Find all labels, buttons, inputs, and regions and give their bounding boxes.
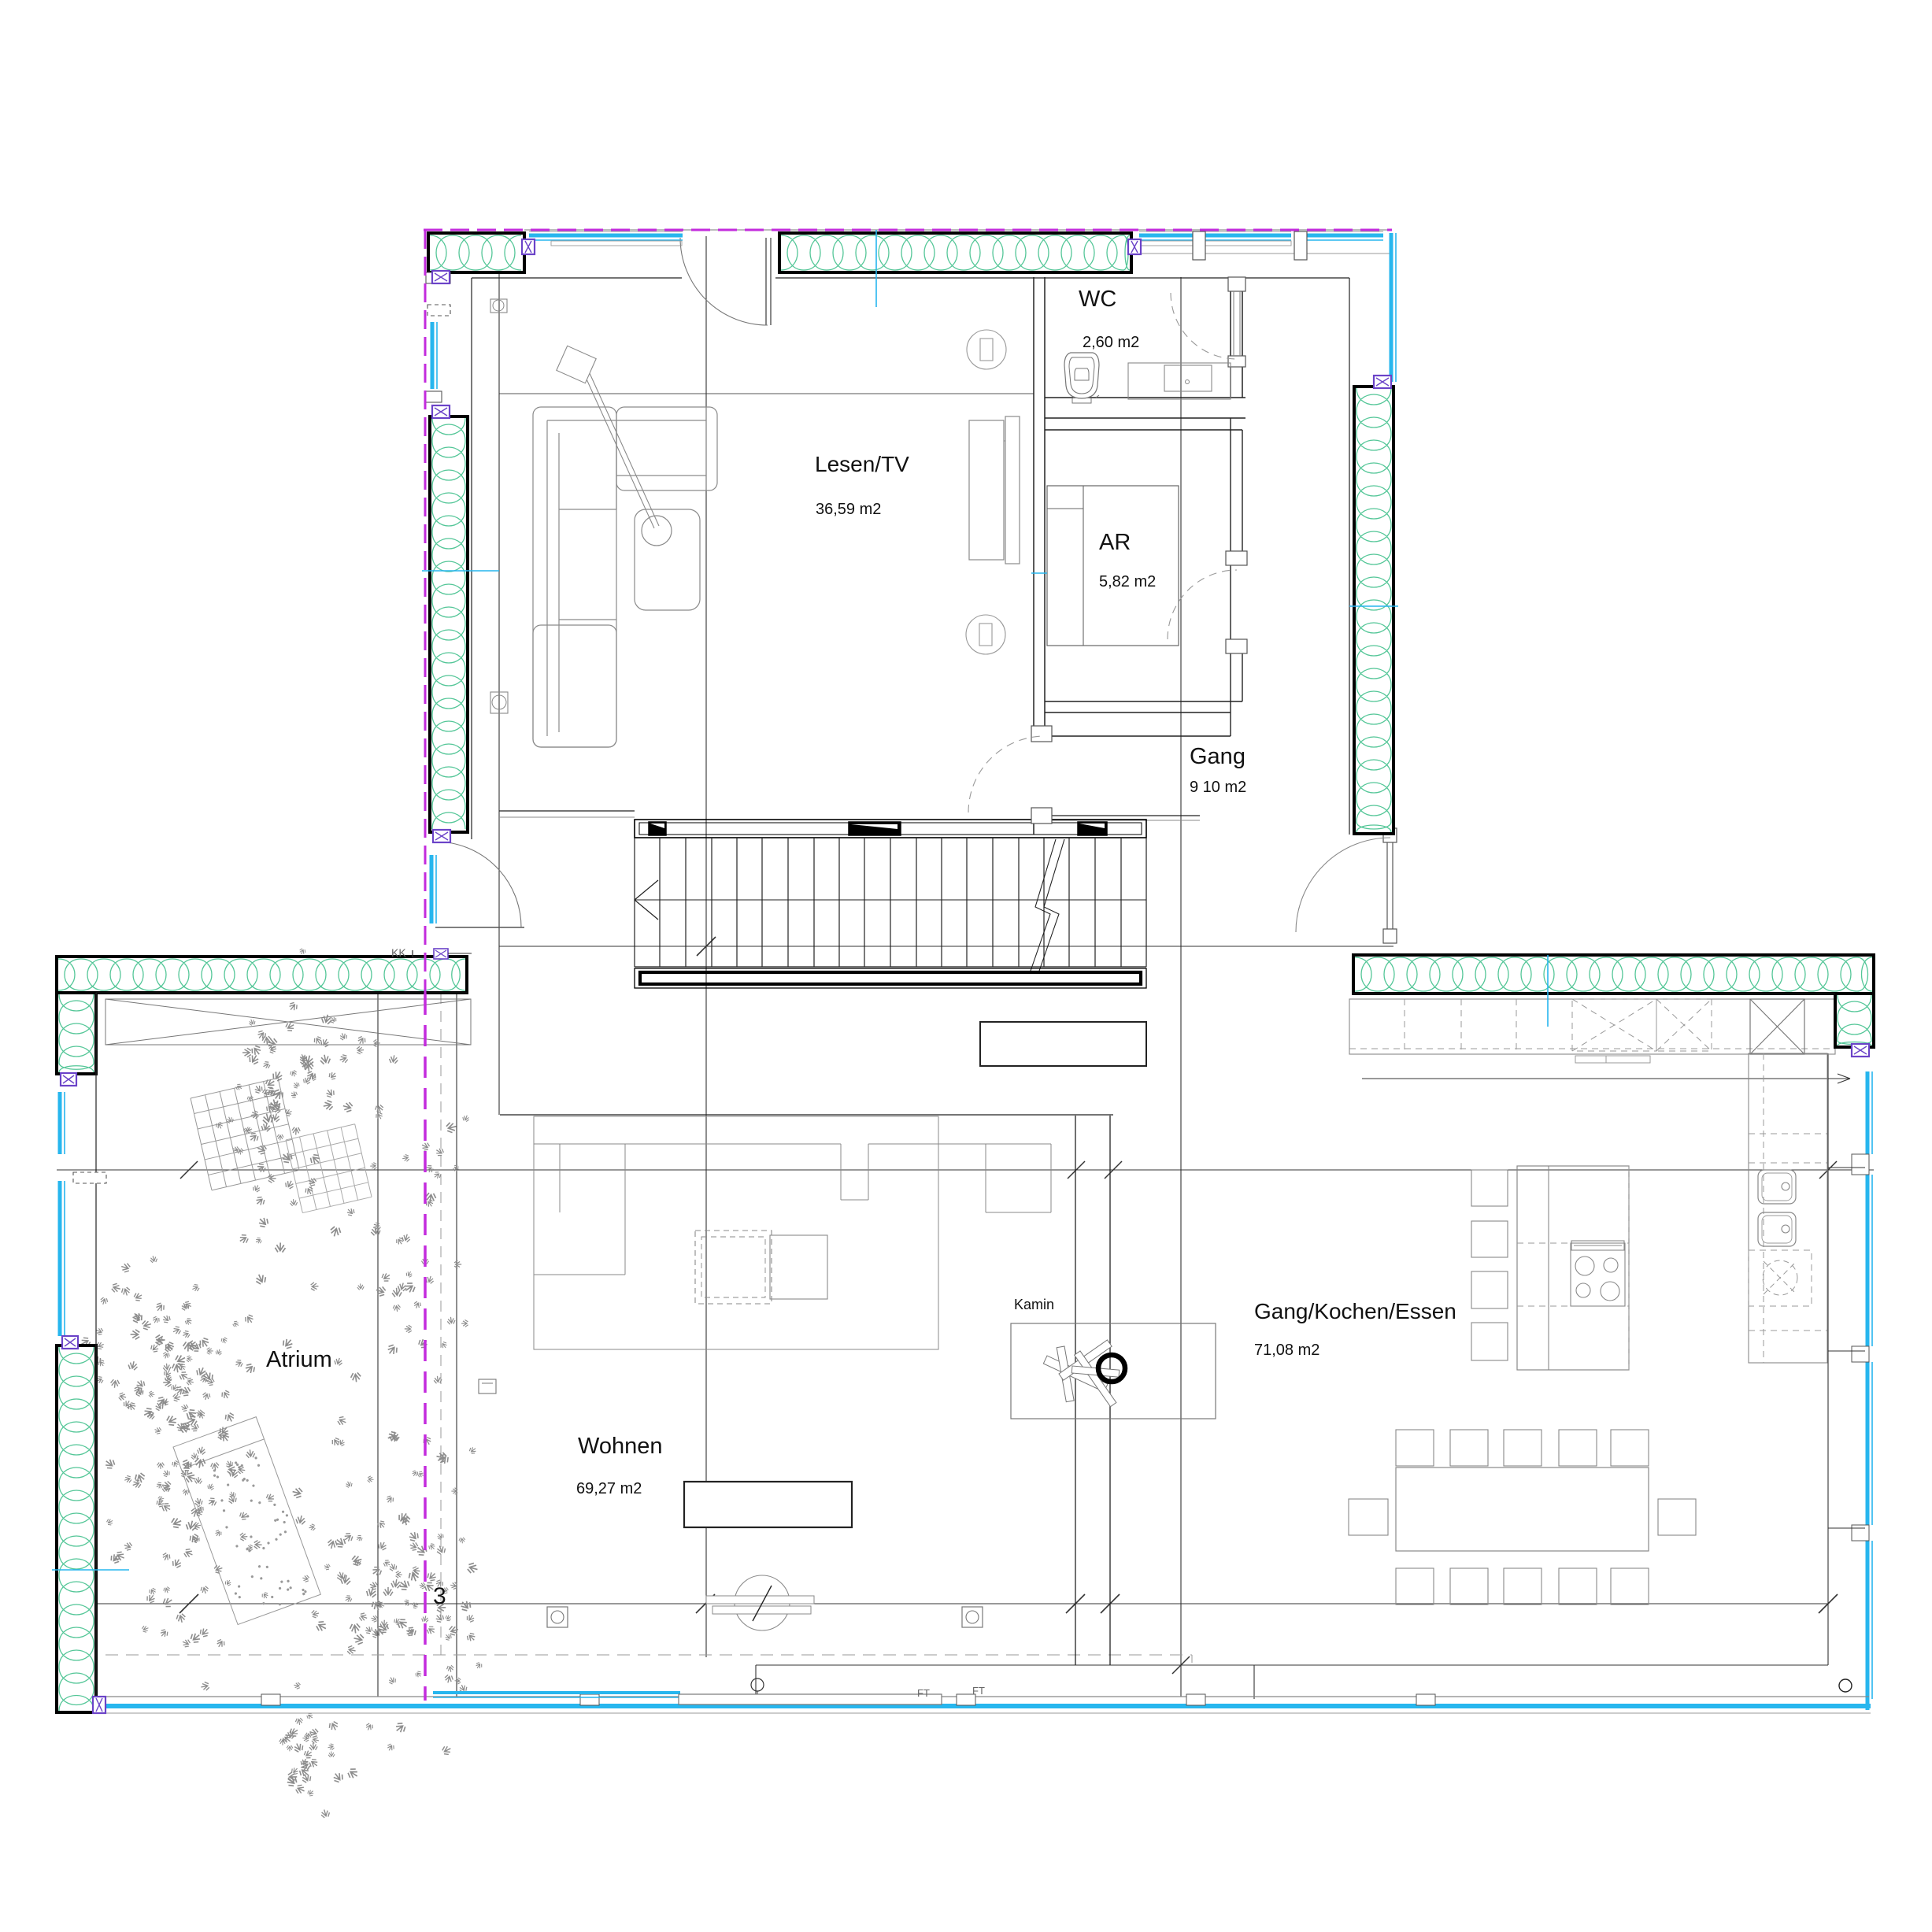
svg-text:69,27 m2: 69,27 m2 [576,1480,642,1497]
svg-text:3: 3 [433,1583,446,1609]
svg-text:KK: KK [391,946,406,959]
svg-text:Lesen/TV: Lesen/TV [815,452,909,476]
svg-text:9 10 m2: 9 10 m2 [1190,779,1246,796]
svg-text:5,82 m2: 5,82 m2 [1099,573,1156,590]
svg-text:36,59 m2: 36,59 m2 [816,501,881,518]
svg-text:Kamin: Kamin [1014,1297,1054,1312]
svg-text:Gang: Gang [1190,744,1245,769]
svg-text:WC: WC [1079,287,1116,312]
svg-text:Wohnen: Wohnen [578,1434,663,1459]
svg-text:FT: FT [972,1685,985,1697]
svg-text:Atrium: Atrium [266,1347,332,1372]
svg-text:Gang/Kochen/Essen: Gang/Kochen/Essen [1254,1299,1456,1323]
svg-text:2,60 m2: 2,60 m2 [1083,334,1139,351]
svg-text:AR: AR [1099,530,1131,555]
svg-text:FT: FT [917,1687,930,1699]
svg-text:71,08 m2: 71,08 m2 [1254,1342,1319,1359]
